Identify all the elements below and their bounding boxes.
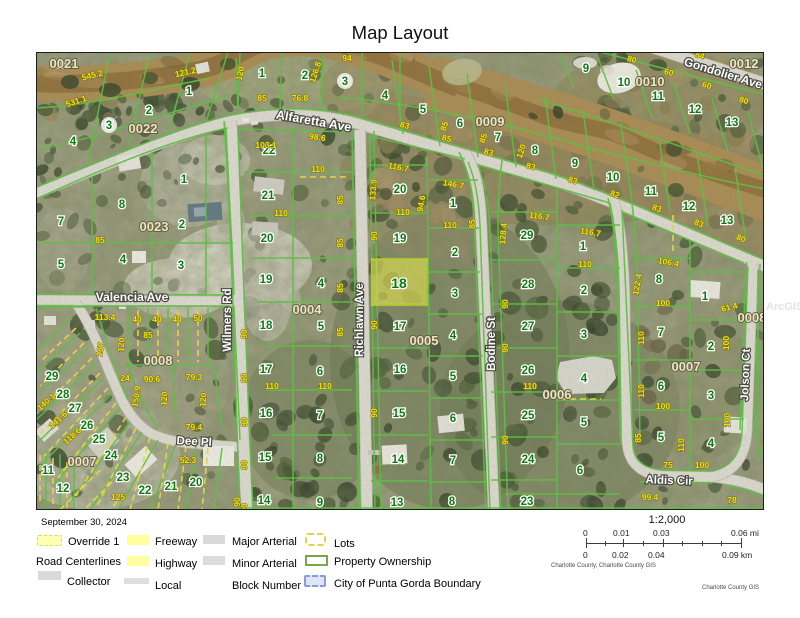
svg-text:13: 13 xyxy=(391,497,404,509)
svg-text:120: 120 xyxy=(115,337,126,352)
svg-text:3: 3 xyxy=(452,288,458,300)
svg-text:40: 40 xyxy=(152,314,162,324)
svg-text:4: 4 xyxy=(318,278,325,290)
svg-text:4: 4 xyxy=(450,330,457,342)
svg-text:6: 6 xyxy=(577,465,583,477)
svg-text:11: 11 xyxy=(645,186,658,198)
svg-text:0021: 0021 xyxy=(50,56,79,71)
svg-text:24: 24 xyxy=(120,373,130,383)
svg-text:0022: 0022 xyxy=(129,121,158,136)
svg-text:2: 2 xyxy=(452,247,458,259)
svg-text:8: 8 xyxy=(119,199,126,211)
svg-text:85: 85 xyxy=(335,283,345,293)
svg-text:5: 5 xyxy=(658,432,665,444)
svg-text:110: 110 xyxy=(578,259,592,269)
svg-text:90: 90 xyxy=(500,435,510,445)
svg-text:10: 10 xyxy=(607,172,620,184)
svg-text:85: 85 xyxy=(335,238,345,248)
svg-text:133.9: 133.9 xyxy=(367,178,379,200)
svg-text:110: 110 xyxy=(396,207,410,217)
svg-text:Dee Pl: Dee Pl xyxy=(176,435,212,449)
svg-text:94: 94 xyxy=(342,53,352,63)
svg-text:113.4: 113.4 xyxy=(95,312,116,322)
svg-text:29: 29 xyxy=(46,371,59,383)
svg-text:2: 2 xyxy=(146,105,152,117)
svg-text:120: 120 xyxy=(197,392,208,407)
svg-text:15: 15 xyxy=(259,452,272,464)
svg-text:0010: 0010 xyxy=(636,74,665,89)
svg-text:22: 22 xyxy=(139,485,152,497)
svg-text:12: 12 xyxy=(689,104,702,116)
svg-text:26: 26 xyxy=(522,365,535,377)
svg-text:28: 28 xyxy=(57,389,70,401)
svg-text:110: 110 xyxy=(311,164,325,174)
svg-text:90: 90 xyxy=(232,497,242,507)
svg-text:90: 90 xyxy=(369,408,379,418)
svg-text:4: 4 xyxy=(382,90,389,102)
svg-text:3: 3 xyxy=(106,120,112,132)
svg-text:8: 8 xyxy=(449,496,456,508)
svg-text:9: 9 xyxy=(572,158,578,170)
svg-text:4: 4 xyxy=(581,373,588,385)
svg-text:16: 16 xyxy=(260,408,273,420)
svg-text:14: 14 xyxy=(258,495,271,507)
svg-text:100: 100 xyxy=(656,401,670,411)
svg-text:110: 110 xyxy=(265,381,279,391)
svg-text:3: 3 xyxy=(178,260,184,272)
svg-text:7: 7 xyxy=(495,132,501,144)
svg-text:12: 12 xyxy=(683,201,696,213)
svg-text:11: 11 xyxy=(652,91,665,103)
svg-text:2: 2 xyxy=(581,285,587,297)
svg-text:27: 27 xyxy=(522,321,535,333)
svg-text:85: 85 xyxy=(335,195,345,205)
svg-text:16: 16 xyxy=(394,364,407,376)
svg-text:120: 120 xyxy=(158,391,169,406)
svg-text:19: 19 xyxy=(394,233,407,245)
svg-text:0023: 0023 xyxy=(140,219,169,234)
svg-text:3: 3 xyxy=(581,329,587,341)
svg-text:5: 5 xyxy=(420,104,427,116)
svg-text:76.8: 76.8 xyxy=(292,93,309,103)
svg-text:2: 2 xyxy=(179,219,185,231)
svg-text:90: 90 xyxy=(239,329,249,339)
svg-text:0009: 0009 xyxy=(476,114,505,129)
svg-text:85: 85 xyxy=(633,433,643,443)
svg-text:0007: 0007 xyxy=(672,359,701,374)
svg-text:90: 90 xyxy=(239,460,249,470)
svg-text:24: 24 xyxy=(522,454,535,466)
svg-text:1: 1 xyxy=(580,241,587,253)
svg-text:128.4: 128.4 xyxy=(497,222,509,244)
svg-text:85: 85 xyxy=(257,93,267,103)
svg-text:40: 40 xyxy=(132,314,142,324)
svg-text:3: 3 xyxy=(708,390,714,402)
svg-text:4: 4 xyxy=(70,136,77,148)
svg-text:85: 85 xyxy=(467,219,477,229)
svg-text:79.4: 79.4 xyxy=(186,422,203,432)
svg-text:7: 7 xyxy=(450,455,456,467)
svg-text:0006: 0006 xyxy=(543,387,572,402)
svg-text:85: 85 xyxy=(143,330,153,340)
svg-text:90: 90 xyxy=(239,417,249,427)
svg-text:90: 90 xyxy=(500,343,510,353)
svg-text:6: 6 xyxy=(450,413,456,425)
svg-text:110: 110 xyxy=(636,331,646,345)
svg-text:8: 8 xyxy=(532,145,539,157)
svg-text:Jolson Ct: Jolson Ct xyxy=(739,348,753,401)
svg-text:90: 90 xyxy=(369,320,379,330)
svg-text:23: 23 xyxy=(521,496,534,508)
svg-text:26: 26 xyxy=(81,420,94,432)
svg-text:50: 50 xyxy=(193,313,203,323)
svg-text:6: 6 xyxy=(658,381,664,393)
svg-text:90: 90 xyxy=(500,299,510,309)
svg-text:85: 85 xyxy=(335,327,345,337)
svg-text:29: 29 xyxy=(521,230,534,242)
svg-text:18: 18 xyxy=(391,275,407,291)
svg-text:1: 1 xyxy=(702,291,709,303)
svg-text:17: 17 xyxy=(260,364,273,376)
svg-text:0007: 0007 xyxy=(68,454,97,469)
svg-text:5: 5 xyxy=(318,321,325,333)
svg-text:20: 20 xyxy=(394,184,407,196)
svg-text:7: 7 xyxy=(658,327,664,339)
svg-text:14: 14 xyxy=(392,454,405,466)
svg-text:2: 2 xyxy=(708,341,714,353)
svg-text:78: 78 xyxy=(727,495,737,505)
svg-text:25: 25 xyxy=(93,434,106,446)
svg-text:110: 110 xyxy=(636,384,646,398)
svg-text:5: 5 xyxy=(581,417,588,429)
svg-text:27: 27 xyxy=(69,403,82,415)
svg-text:25: 25 xyxy=(522,410,535,422)
svg-text:1: 1 xyxy=(181,174,188,186)
svg-text:12: 12 xyxy=(57,483,70,495)
svg-text:90: 90 xyxy=(239,373,249,383)
svg-text:52.3: 52.3 xyxy=(180,455,197,465)
svg-text:7: 7 xyxy=(317,410,323,422)
svg-text:79.3: 79.3 xyxy=(186,372,203,382)
svg-text:40: 40 xyxy=(172,314,182,324)
svg-text:15: 15 xyxy=(393,408,406,420)
svg-text:Richlawn Ave: Richlawn Ave xyxy=(354,283,366,357)
svg-text:0008: 0008 xyxy=(738,310,764,325)
svg-text:9: 9 xyxy=(583,63,589,75)
svg-text:6: 6 xyxy=(457,118,463,130)
svg-text:99.4: 99.4 xyxy=(642,492,659,502)
svg-text:110: 110 xyxy=(318,381,332,391)
svg-text:5: 5 xyxy=(450,371,457,383)
svg-text:1: 1 xyxy=(259,68,266,80)
svg-text:Bodine St: Bodine St xyxy=(486,317,498,371)
svg-text:10: 10 xyxy=(618,77,631,89)
svg-text:110: 110 xyxy=(676,438,686,452)
svg-text:Valencia Ave: Valencia Ave xyxy=(96,290,169,304)
svg-text:Wilmers Rd: Wilmers Rd xyxy=(222,288,234,351)
svg-text:11: 11 xyxy=(42,465,55,477)
svg-text:0004: 0004 xyxy=(293,302,323,317)
svg-text:100: 100 xyxy=(695,460,709,470)
svg-text:Aldis Cir: Aldis Cir xyxy=(645,474,693,488)
svg-text:103.1: 103.1 xyxy=(255,140,277,150)
svg-text:21: 21 xyxy=(165,481,178,493)
svg-text:110: 110 xyxy=(443,220,457,230)
svg-text:110: 110 xyxy=(523,381,537,391)
svg-text:17: 17 xyxy=(394,321,407,333)
svg-text:0005: 0005 xyxy=(410,333,439,348)
svg-text:4: 4 xyxy=(120,254,127,266)
svg-text:85: 85 xyxy=(95,235,105,245)
svg-text:13: 13 xyxy=(721,215,734,227)
svg-text:8: 8 xyxy=(656,274,663,286)
svg-text:7: 7 xyxy=(58,216,64,228)
svg-text:90.6: 90.6 xyxy=(144,374,161,384)
svg-text:8: 8 xyxy=(317,453,324,465)
svg-text:19: 19 xyxy=(260,274,273,286)
svg-text:20: 20 xyxy=(190,477,203,489)
svg-text:1: 1 xyxy=(450,198,457,210)
svg-text:24: 24 xyxy=(105,450,118,462)
svg-text:13: 13 xyxy=(726,117,739,129)
svg-text:5: 5 xyxy=(58,259,65,271)
svg-text:100: 100 xyxy=(722,413,732,427)
svg-text:75: 75 xyxy=(663,460,673,470)
svg-text:110: 110 xyxy=(274,208,288,218)
svg-text:21: 21 xyxy=(262,190,275,202)
svg-text:125: 125 xyxy=(111,492,125,502)
svg-text:20: 20 xyxy=(261,233,274,245)
svg-text:100: 100 xyxy=(721,336,731,350)
svg-text:4: 4 xyxy=(708,438,715,450)
svg-text:28: 28 xyxy=(522,279,535,291)
svg-text:0008: 0008 xyxy=(144,353,173,368)
svg-text:6: 6 xyxy=(317,366,323,378)
svg-text:3: 3 xyxy=(342,76,348,88)
svg-text:1: 1 xyxy=(186,86,193,98)
svg-text:23: 23 xyxy=(117,472,130,484)
svg-text:100: 100 xyxy=(656,298,670,308)
svg-text:9: 9 xyxy=(317,497,323,509)
svg-text:90: 90 xyxy=(369,231,379,241)
svg-text:18: 18 xyxy=(260,320,273,332)
